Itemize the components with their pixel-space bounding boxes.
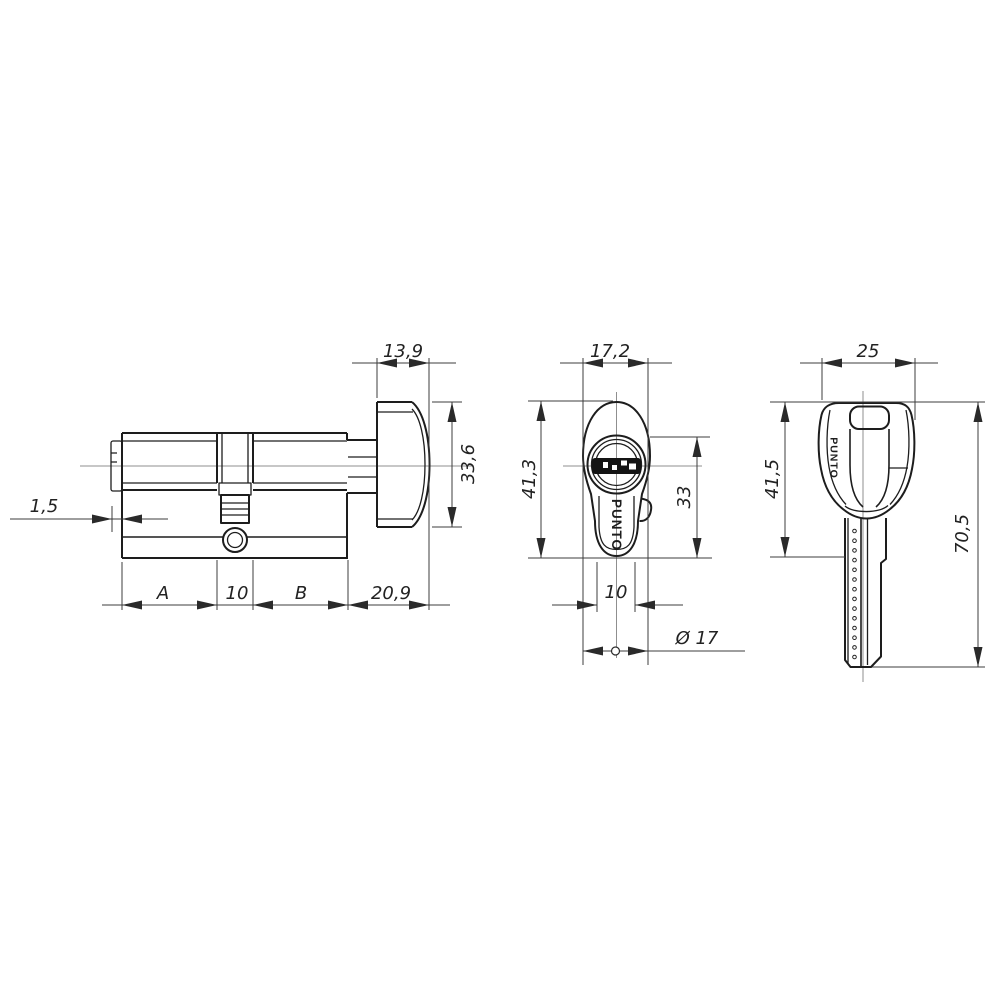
dim-knob-depth-lines <box>352 358 456 610</box>
drawing-canvas: 1,5 13,9 33,6 A 10 B 20,9 PUNTO <box>0 0 1000 1000</box>
key-head-bottom-arc <box>845 506 888 512</box>
dim-head-width-label: 25 <box>857 341 880 362</box>
cylinder-front-view: PUNTO 17,2 41,3 33 10 Ø 17 <box>519 341 745 665</box>
dim-knob-depth-label: 13,9 <box>383 341 423 362</box>
keyway-ward-2 <box>612 465 617 470</box>
key-blade-dimples <box>853 529 857 659</box>
knob-neck-lines <box>348 457 377 477</box>
keyway-ward-1 <box>603 462 608 468</box>
dim-body-height-label: 33 <box>674 486 695 509</box>
dim-knob-length-label: 20,9 <box>371 583 411 604</box>
keyway-ward-3 <box>621 461 627 466</box>
dim-b-label: B <box>295 583 307 604</box>
dim-front-rim-label: 1,5 <box>30 496 59 517</box>
key-blade-inner-lines <box>848 518 868 665</box>
cam-collar <box>219 483 251 495</box>
dim-face-width-label: 17,2 <box>590 341 630 362</box>
key-head-top-slot <box>850 407 889 430</box>
cam-ring-lines <box>221 503 249 515</box>
dim-plug-diameter-center-mark <box>612 647 620 655</box>
dim-plug-diameter-label: Ø 17 <box>675 628 719 649</box>
punto-logo-face: PUNTO <box>609 499 624 551</box>
cylinder-side-view: 1,5 13,9 33,6 A 10 B 20,9 <box>10 341 479 610</box>
front-rim-notches <box>111 453 117 462</box>
front-centerlines <box>563 392 702 658</box>
dim-knob-diameter-label: 33,6 <box>458 444 479 484</box>
key-blade-outline <box>845 518 886 667</box>
knob-cap-inner-arc <box>412 409 425 520</box>
cam-gap-inner-edges <box>222 433 248 483</box>
dim-head-width-lines <box>800 358 938 420</box>
dim-face-height-label: 41,3 <box>519 459 540 499</box>
fixing-screw-inner <box>228 533 243 548</box>
dim-body-width-label: 10 <box>605 582 628 603</box>
knob-body <box>377 402 412 527</box>
punto-logo-key: PUNTO <box>828 437 840 479</box>
barrel-chamfer-lines <box>122 441 347 483</box>
dim-cam-width-label: 10 <box>226 583 249 604</box>
knob-cap-outer-arc <box>412 402 430 527</box>
dim-total-length-label: 70,5 <box>952 514 973 554</box>
fixing-screw-outer <box>223 528 247 552</box>
keyway-ward-4 <box>629 464 636 470</box>
dim-head-height-label: 41,5 <box>762 459 783 499</box>
key-head-grip-edges <box>850 429 889 507</box>
lock-cylinder-technical-drawing: 1,5 13,9 33,6 A 10 B 20,9 PUNTO <box>0 0 1000 1000</box>
key-view: PUNTO 25 41,5 <box>762 341 985 682</box>
dim-a-label: A <box>156 583 169 604</box>
